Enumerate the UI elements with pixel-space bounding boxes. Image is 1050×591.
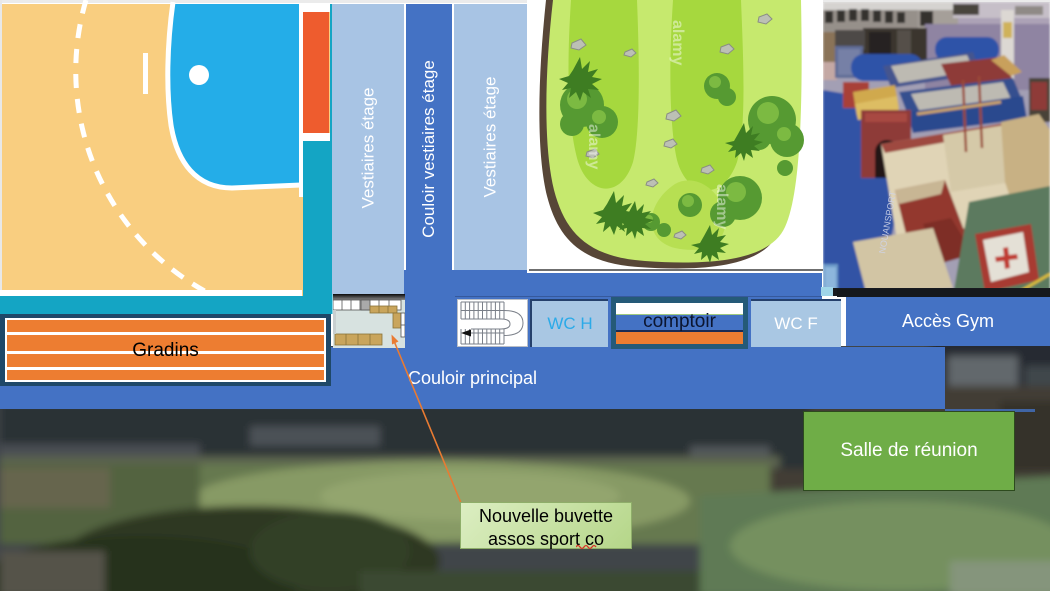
- svg-text:alamy: alamy: [669, 20, 686, 65]
- svg-text:alamy: alamy: [585, 124, 602, 169]
- svg-text:alamy: alamy: [713, 184, 730, 229]
